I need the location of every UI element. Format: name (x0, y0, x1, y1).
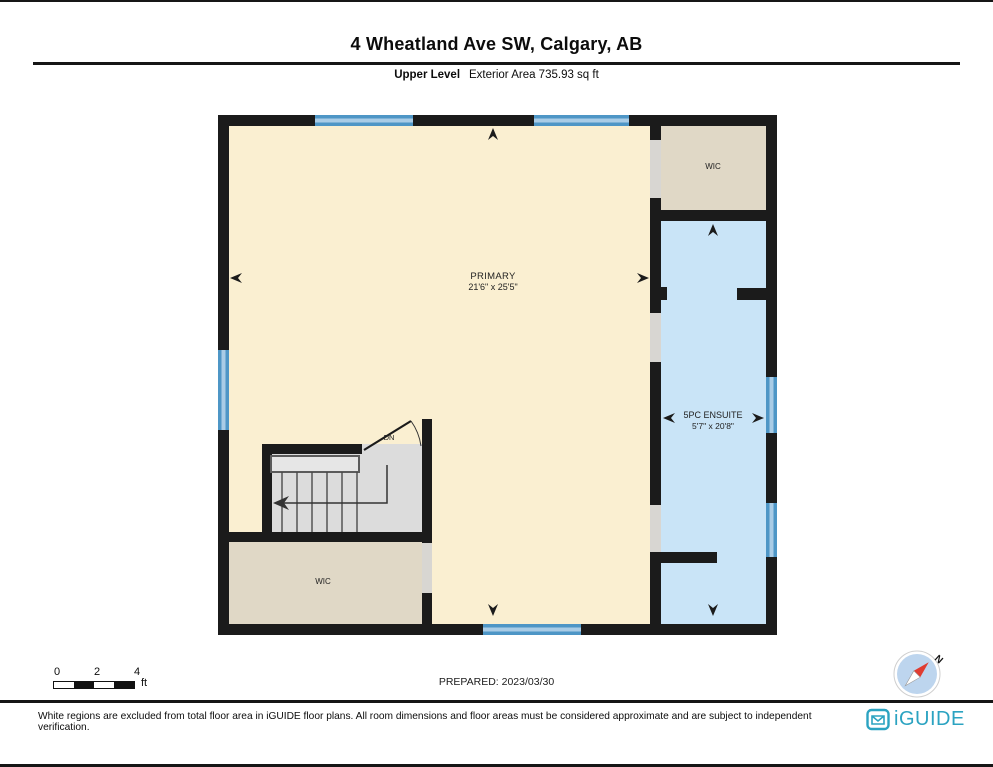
wic-lower-room-name: WIC (315, 577, 331, 586)
iguide-logo-icon (866, 706, 890, 732)
iguide-logo: iGUIDE (866, 705, 966, 733)
primary-room-dims: 21'6" x 25'5" (468, 282, 517, 292)
floor-plan: DN PRIMARY 21'6" x 25'5" WIC 5PC ENSUITE… (0, 0, 993, 767)
footer-divider (0, 700, 993, 703)
ensuite-room-dims: 5'7" x 20'8" (692, 421, 734, 431)
prepared-date-label: PREPARED: 2023/03/30 (0, 676, 993, 688)
disclaimer-text: White regions are excluded from total fl… (38, 711, 828, 733)
stair-dn-label: DN (384, 433, 395, 442)
primary-room-name: PRIMARY (470, 271, 516, 282)
ensuite-room-name: 5PC ENSUITE (683, 410, 742, 420)
wic-upper-room-name: WIC (705, 162, 721, 171)
compass: N (894, 651, 945, 697)
iguide-logo-text: iGUIDE (894, 708, 965, 731)
stair-landing (271, 456, 359, 472)
